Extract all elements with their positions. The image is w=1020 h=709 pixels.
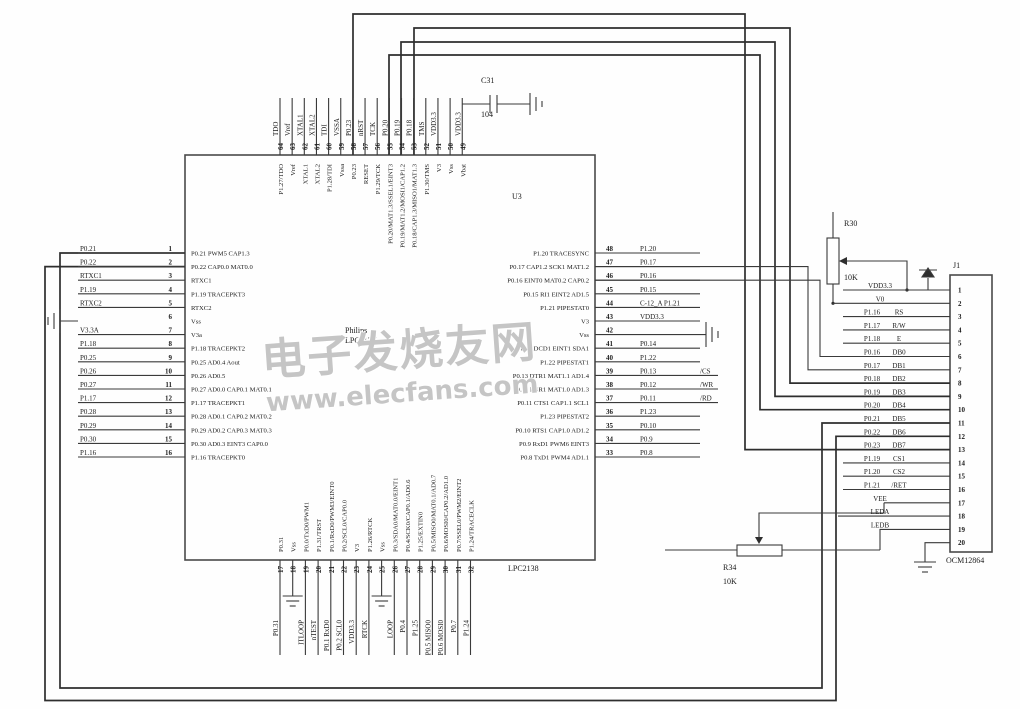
connector-designator: J1 bbox=[953, 261, 960, 270]
pin-net-label: Vref bbox=[284, 123, 292, 136]
pin-number: 18 bbox=[290, 566, 298, 574]
pin-net-tag: /CS bbox=[700, 367, 711, 375]
pin-net-label: P0.9 bbox=[640, 435, 653, 443]
pin-number: 44 bbox=[606, 299, 614, 307]
r34-ref: R34 bbox=[723, 563, 736, 572]
pin-function-label: RESET bbox=[363, 164, 370, 184]
pin-net-label: P0.15 bbox=[640, 286, 657, 294]
pin-number: 19 bbox=[302, 566, 310, 574]
connector-net-label: P1.17 bbox=[864, 322, 881, 330]
pin-function-label: RTXC1 bbox=[191, 278, 212, 285]
connector-net-label: P1.19 bbox=[864, 455, 881, 463]
pin-net-label: P0.27 bbox=[80, 381, 97, 389]
pin-net-label: P0.7 bbox=[450, 620, 458, 633]
pin-function-label: V3 bbox=[354, 543, 361, 552]
pin-number: 16 bbox=[165, 449, 173, 457]
pin-number: 5 bbox=[169, 299, 173, 307]
connector-pin-number: 5 bbox=[958, 340, 962, 348]
pin-net-label: C-12_A P1.21 bbox=[640, 299, 681, 307]
pin-function-label: P0.25 AD0.4 Aout bbox=[191, 359, 240, 366]
pin-net-label: P0.10 bbox=[640, 422, 657, 430]
pin-number: 27 bbox=[404, 566, 412, 574]
connector-pin-number: 10 bbox=[958, 406, 966, 414]
connector-function-label: DB1 bbox=[892, 362, 906, 370]
pin-net-label: RTCK bbox=[361, 620, 369, 638]
pin-function-label: P0.9 RxD1 PWM6 EINT3 bbox=[519, 441, 590, 448]
pin-number: 6 bbox=[169, 313, 173, 321]
pin-function-label: Vss bbox=[579, 332, 589, 339]
pin-number: 57 bbox=[362, 143, 370, 151]
connector-pin-number: 1 bbox=[958, 287, 962, 295]
connector-net-label: P1.21 bbox=[864, 482, 881, 490]
pin-function-label: Vref bbox=[290, 163, 297, 175]
pin-number: 35 bbox=[606, 422, 614, 430]
pin-number: 28 bbox=[417, 566, 425, 574]
pin-number: 55 bbox=[386, 143, 394, 151]
pin-net-label: TMS bbox=[418, 122, 426, 137]
pin-number: 26 bbox=[391, 566, 399, 574]
pin-net-label: VDD3.3 bbox=[640, 313, 664, 321]
pin-number: 7 bbox=[169, 327, 173, 335]
connector-function-label: VDD3.3 bbox=[868, 282, 892, 290]
connector-function-label: /RET bbox=[891, 482, 907, 490]
pin-function-label: P0.28 AD0.1 CAP0.2 MAT0.2 bbox=[191, 414, 272, 421]
bus-routing-wires bbox=[45, 14, 950, 701]
pin-net-label: P1.24 bbox=[463, 620, 471, 637]
connector-pin-number: 14 bbox=[958, 459, 966, 467]
pin-function-label: P0.13 DTR1 MAT1.1 AD1.4 bbox=[513, 373, 590, 380]
pin-net-label: TDO bbox=[272, 122, 280, 136]
pin-number: 48 bbox=[606, 245, 614, 253]
pin-function-label: P0.20/MAT1.3/SSEL1/EINT3 bbox=[387, 163, 394, 244]
connector-pin-number: 2 bbox=[958, 300, 962, 308]
pin-function-label: P1.21 PIPESTAT0 bbox=[540, 305, 590, 312]
connector-pin-number: 13 bbox=[958, 446, 966, 454]
connector-pin-number: 9 bbox=[958, 393, 962, 401]
pin-net-label: XTAL2 bbox=[308, 114, 316, 136]
connector-function-label: DB6 bbox=[892, 428, 906, 436]
pin-number: 51 bbox=[435, 143, 443, 151]
pin-number: 33 bbox=[606, 449, 614, 457]
pin-net-label: P0.25 bbox=[80, 354, 97, 362]
connector-pin-number: 7 bbox=[958, 366, 962, 374]
connector-function-label: E bbox=[897, 335, 901, 343]
pin-number: 21 bbox=[328, 566, 336, 574]
pin-number: 11 bbox=[165, 381, 172, 389]
pin-number: 40 bbox=[606, 354, 614, 362]
pin-number: 36 bbox=[606, 408, 614, 416]
pin-number: 17 bbox=[277, 566, 285, 574]
pin-net-label: TDI bbox=[321, 124, 329, 136]
mcu-designator: U3 bbox=[512, 192, 522, 201]
pin-number: 60 bbox=[326, 143, 334, 151]
pin-number: 62 bbox=[301, 143, 309, 151]
potentiometer-r34 bbox=[665, 503, 950, 556]
connector-net-label: P1.16 bbox=[864, 309, 881, 317]
pin-function-label: Vss bbox=[380, 542, 387, 552]
connector-net-label: P0.22 bbox=[864, 428, 881, 436]
pin-net-label: P0.21 bbox=[80, 245, 97, 253]
pin-net-label: P0.22 bbox=[80, 259, 97, 267]
pin-number: 56 bbox=[374, 143, 382, 151]
pin-function-label: P0.2/SCL0/CAP0.0 bbox=[342, 499, 349, 552]
connector-net-label: P0.16 bbox=[864, 349, 881, 357]
connector-part-number: OCM12864 bbox=[946, 556, 984, 565]
pin-function-label: Vss bbox=[448, 164, 455, 174]
pin-number: 52 bbox=[423, 143, 431, 151]
pin-number: 59 bbox=[338, 143, 346, 151]
pin-net-label: P0.16 bbox=[640, 272, 657, 280]
pin-net-label: ITLOOP bbox=[297, 620, 305, 645]
pin-function-label: Vss bbox=[291, 542, 298, 552]
pin-function-label: P1.24/TRACECLK bbox=[469, 500, 476, 552]
pin-net-label: P0.13 bbox=[640, 367, 657, 375]
pin-number: 63 bbox=[289, 143, 297, 151]
pin-net-label: P0.23 bbox=[345, 119, 353, 136]
pin-function-label: P0.30 AD0.3 EINT3 CAP0.0 bbox=[191, 441, 269, 448]
pin-net-label: P0.31 bbox=[272, 620, 280, 637]
pin-function-label: P0.0/TxD0/PWM1 bbox=[303, 502, 310, 552]
pin-function-label: P0.16 EINT0 MAT0.2 CAP0.2 bbox=[507, 278, 589, 285]
pin-number: 20 bbox=[315, 566, 323, 574]
pin-number: 32 bbox=[468, 566, 476, 574]
connector-pin-number: 3 bbox=[958, 313, 962, 321]
pin-number: 13 bbox=[165, 408, 173, 416]
pin-number: 9 bbox=[169, 354, 173, 362]
pin-function-label: Vssa bbox=[339, 164, 346, 177]
pin-number: 41 bbox=[606, 340, 614, 348]
pin-function-label: P0.27 AD0.0 CAP0.1 MAT0.1 bbox=[191, 387, 272, 394]
pin-function-label: P0.23 bbox=[351, 163, 358, 179]
pin-number: 53 bbox=[411, 143, 419, 151]
pin-function-label: XTAL1 bbox=[302, 164, 309, 184]
connector-function-label: LEDB bbox=[871, 521, 890, 529]
pin-function-label: P1.30/TMS bbox=[424, 164, 431, 195]
pin-number: 61 bbox=[313, 143, 321, 151]
pin-number: 2 bbox=[169, 259, 173, 267]
pin-function-label: P0.29 AD0.2 CAP0.3 MAT0.3 bbox=[191, 427, 272, 434]
pin-number: 46 bbox=[606, 272, 614, 280]
pin-net-label: P1.19 bbox=[80, 286, 97, 294]
pin-number: 45 bbox=[606, 286, 614, 294]
connector-function-label: RS bbox=[895, 309, 904, 317]
connector-pin-number: 17 bbox=[958, 499, 966, 507]
connector-function-label: CS1 bbox=[893, 455, 906, 463]
mcu-part-number: LPC2138 bbox=[508, 564, 539, 573]
connector-net-label: P0.19 bbox=[864, 388, 881, 396]
pin-net-label: P1.23 bbox=[640, 408, 657, 416]
pin-net-label: P0.2 SCL0 bbox=[336, 620, 344, 651]
pin-function-label: P1.27/TDO bbox=[278, 164, 285, 195]
connector-function-label: VEE bbox=[873, 495, 887, 503]
connector-function-label: DB3 bbox=[892, 388, 906, 396]
pin-net-label: P0.17 bbox=[640, 259, 657, 267]
mcu-maker: Philips bbox=[345, 326, 367, 335]
pin-net-label: LOOP bbox=[386, 620, 394, 638]
pin-function-label: P1.25/EXTIN0 bbox=[418, 511, 425, 552]
pin-number: 8 bbox=[169, 340, 173, 348]
pin-net-label: P0.6 MOSI0 bbox=[437, 620, 445, 656]
pin-number: 23 bbox=[353, 566, 361, 574]
pin-net-label: nTEST bbox=[310, 619, 318, 640]
pin-function-label: P0.4/SCK0/CAP0.1/AD0.6 bbox=[405, 479, 412, 552]
power-symbol bbox=[919, 268, 937, 290]
pin-number: 12 bbox=[165, 395, 173, 403]
pin-number: 64 bbox=[277, 143, 285, 151]
connector-function-label: DB5 bbox=[892, 415, 906, 423]
pin-net-label: VSSA bbox=[333, 118, 341, 136]
pin-number: 50 bbox=[447, 143, 455, 151]
pin-number: 3 bbox=[169, 272, 173, 280]
pin-net-label: P0.18 bbox=[406, 119, 414, 136]
pin-function-label: V3 bbox=[436, 163, 443, 172]
pin-net-label: VDD3.3 bbox=[348, 620, 356, 644]
pin-function-label: P0.12 DSR1 MAT1.0 AD1.3 bbox=[513, 387, 590, 394]
pin-function-label: V3 bbox=[581, 319, 590, 326]
pin-number: 39 bbox=[606, 367, 614, 375]
pin-function-label: P0.22 CAP0.0 MAT0.0 bbox=[191, 264, 253, 271]
pin-net-label: P0.11 bbox=[640, 395, 656, 403]
pin-function-label: P0.3/SDA0/MAT0.0/EINT1 bbox=[392, 478, 399, 552]
ground-symbol-right bbox=[706, 322, 718, 347]
pin-function-label: RTXC2 bbox=[191, 305, 212, 312]
pin-net-label: nRST bbox=[357, 119, 365, 136]
pin-function-label: P0.11 CTS1 CAP1.1 SCL1 bbox=[517, 400, 589, 407]
pin-number: 54 bbox=[399, 143, 407, 151]
ground-symbol-connector bbox=[914, 543, 950, 572]
pin-function-label: P0.18/CAP1.3/MISO1/MAT1.3 bbox=[412, 163, 419, 247]
pin-function-label: P0.17 CAP1.2 SCK1 MAT1.2 bbox=[509, 264, 589, 271]
connector-function-label: DB2 bbox=[892, 375, 906, 383]
lcd-connector-body bbox=[950, 275, 992, 552]
pin-net-label: XTAL1 bbox=[296, 114, 304, 136]
pin-net-label: VDD3.3 bbox=[430, 112, 438, 136]
pin-net-label: TCK bbox=[369, 122, 377, 136]
pin-number: 14 bbox=[165, 422, 173, 430]
pin-net-label: P0.14 bbox=[640, 340, 657, 348]
connector-function-label: DB4 bbox=[892, 402, 906, 410]
pin-function-label: P1.28/TDI bbox=[327, 164, 334, 192]
pin-number: 29 bbox=[429, 566, 437, 574]
pin-net-tag: /WR bbox=[700, 381, 714, 389]
pin-function-label: P0.6/MOSI0/CAP0.2/AD1.0 bbox=[443, 475, 450, 552]
pin-function-label: P1.16 TRACEPKT0 bbox=[191, 455, 246, 462]
pin-function-label: P0.14 DCD1 EINT1 SDA1 bbox=[517, 346, 589, 353]
connector-function-label: DB0 bbox=[892, 349, 906, 357]
c31-value: 104 bbox=[481, 110, 493, 119]
pin-net-label: P0.29 bbox=[80, 422, 97, 430]
c31-ref: C31 bbox=[481, 76, 494, 85]
pin-function-label: P0.10 RTS1 CAP1.0 AD1.2 bbox=[515, 427, 589, 434]
r30-value: 10K bbox=[844, 273, 858, 282]
pin-function-label: P0.5/MISO0/MAT0.1/AD0.7 bbox=[430, 474, 437, 552]
connector-function-label: LEDA bbox=[871, 508, 890, 516]
pin-function-label: P1.26/RTCK bbox=[367, 518, 374, 552]
pin-function-label: Vss bbox=[191, 319, 201, 326]
pin-number: 37 bbox=[606, 395, 614, 403]
ground-symbol-left bbox=[48, 309, 78, 333]
pin-function-label: P1.20 TRACESYNC bbox=[533, 251, 590, 258]
pin-number: 1 bbox=[169, 245, 173, 253]
pin-net-label: P1.17 bbox=[80, 395, 97, 403]
connector-net-label: P0.20 bbox=[864, 402, 881, 410]
pin-number: 22 bbox=[341, 566, 349, 574]
pin-number: 58 bbox=[350, 143, 358, 151]
schematic-canvas: P0.211P0.21 PWM5 CAP1.3P0.222P0.22 CAP0.… bbox=[0, 0, 1020, 709]
pin-function-label: P0.1/RxD0/PWM3/EINT0 bbox=[329, 481, 336, 552]
potentiometer-r30 bbox=[827, 212, 909, 305]
pin-net-label: P0.26 bbox=[80, 367, 97, 375]
pin-function-label: P0.7/SSEL0/PWM2/EINT2 bbox=[456, 479, 463, 552]
capacitor-c31 bbox=[462, 93, 542, 115]
pin-net-label: P0.28 bbox=[80, 408, 97, 416]
pin-number: 38 bbox=[606, 381, 614, 389]
connector-pin-number: 8 bbox=[958, 380, 962, 388]
pin-function-label: P0.21 PWM5 CAP1.3 bbox=[191, 251, 250, 258]
pin-net-label: V3.3A bbox=[80, 327, 99, 335]
pin-net-label: P0.5 MISO0 bbox=[424, 620, 432, 656]
pin-function-label: P1.31/TRST bbox=[316, 519, 323, 552]
pin-function-label: P0.26 AD0.5 bbox=[191, 373, 226, 380]
pin-number: 43 bbox=[606, 313, 614, 321]
connector-net-label: P1.18 bbox=[864, 335, 881, 343]
pin-number: 30 bbox=[442, 566, 450, 574]
pin-function-label: P0.15 RI1 EINT2 AD1.5 bbox=[523, 291, 589, 298]
pin-function-label: P1.17 TRACEPKT1 bbox=[191, 400, 245, 407]
pin-function-label: Vbat bbox=[460, 164, 467, 177]
pin-net-label: P1.20 bbox=[640, 245, 657, 253]
connector-function-label: V0 bbox=[876, 295, 885, 303]
pin-net-label: P1.18 bbox=[80, 340, 97, 348]
pin-net-tag: /RD bbox=[700, 395, 712, 403]
connector-function-label: DB7 bbox=[892, 442, 906, 450]
connector-pin-number: 11 bbox=[958, 420, 965, 428]
connector-pin-number: 18 bbox=[958, 513, 966, 521]
pin-net-label: P0.4 bbox=[399, 620, 407, 633]
pin-number: 10 bbox=[165, 367, 173, 375]
pin-function-label: P0.19/MAT1.2/MOSI1/CAP1.2 bbox=[400, 164, 407, 248]
connector-net-label: P1.20 bbox=[864, 468, 881, 476]
pin-net-label: P0.30 bbox=[80, 435, 97, 443]
pin-function-label: P0.8 TxD1 PWM4 AD1.1 bbox=[520, 455, 589, 462]
mcu-family: LPC213X bbox=[345, 336, 377, 345]
pin-function-label: P1.29/TCK bbox=[375, 164, 382, 194]
schematic-page: P0.211P0.21 PWM5 CAP1.3P0.222P0.22 CAP0.… bbox=[0, 0, 1020, 709]
pin-function-label: P0.31 bbox=[278, 537, 285, 552]
r30-ref: R30 bbox=[844, 219, 857, 228]
connector-net-label: P0.17 bbox=[864, 362, 881, 370]
pin-number: 4 bbox=[169, 286, 173, 294]
connector-pin-number: 15 bbox=[958, 473, 966, 481]
pin-net-label: P1.22 bbox=[640, 354, 657, 362]
connector-net-label: P0.23 bbox=[864, 442, 881, 450]
pin-function-label: P1.23 PIPESTAT2 bbox=[540, 414, 589, 421]
connector-function-label: CS2 bbox=[893, 468, 906, 476]
pin-number: 25 bbox=[379, 566, 387, 574]
pin-net-label: P1.16 bbox=[80, 449, 97, 457]
pin-net-label: VDD3.3 bbox=[454, 112, 462, 136]
connector-pin-number: 19 bbox=[958, 526, 966, 534]
connector-net-label: P0.21 bbox=[864, 415, 881, 423]
pin-net-label: P1.25 bbox=[412, 620, 420, 637]
connector-pin-number: 12 bbox=[958, 433, 966, 441]
pin-net-label: P0.12 bbox=[640, 381, 657, 389]
pin-function-label: P1.19 TRACEPKT3 bbox=[191, 291, 246, 298]
connector-pin-number: 16 bbox=[958, 486, 966, 494]
pin-number: 47 bbox=[606, 259, 614, 267]
pin-function-label: P1.18 TRACEPKT2 bbox=[191, 346, 245, 353]
pin-net-label: P0.19 bbox=[394, 119, 402, 136]
connector-pin-number: 4 bbox=[958, 326, 962, 334]
pin-function-label: V3a bbox=[191, 332, 202, 339]
connector-function-label: R/W bbox=[892, 322, 906, 330]
pin-net-label: RTXC2 bbox=[80, 299, 102, 307]
pin-number: 15 bbox=[165, 435, 173, 443]
pin-function-label: P1.22 PIPESTAT1 bbox=[540, 359, 589, 366]
pin-number: 24 bbox=[366, 566, 374, 574]
pin-number: 42 bbox=[606, 327, 614, 335]
connector-pin-number: 6 bbox=[958, 353, 962, 361]
pin-number: 34 bbox=[606, 435, 614, 443]
connector-net-label: P0.18 bbox=[864, 375, 881, 383]
connector-pin-number: 20 bbox=[958, 539, 966, 547]
pin-net-label: RTXC1 bbox=[80, 272, 102, 280]
pin-number: 31 bbox=[455, 566, 463, 574]
pin-number: 49 bbox=[459, 143, 467, 151]
pin-net-label: P0.20 bbox=[381, 119, 389, 136]
r34-value: 10K bbox=[723, 577, 737, 586]
pin-function-label: XTAL2 bbox=[314, 164, 321, 184]
pin-net-label: P0.8 bbox=[640, 449, 653, 457]
pin-net-label: P0.1 RxD0 bbox=[323, 620, 331, 652]
